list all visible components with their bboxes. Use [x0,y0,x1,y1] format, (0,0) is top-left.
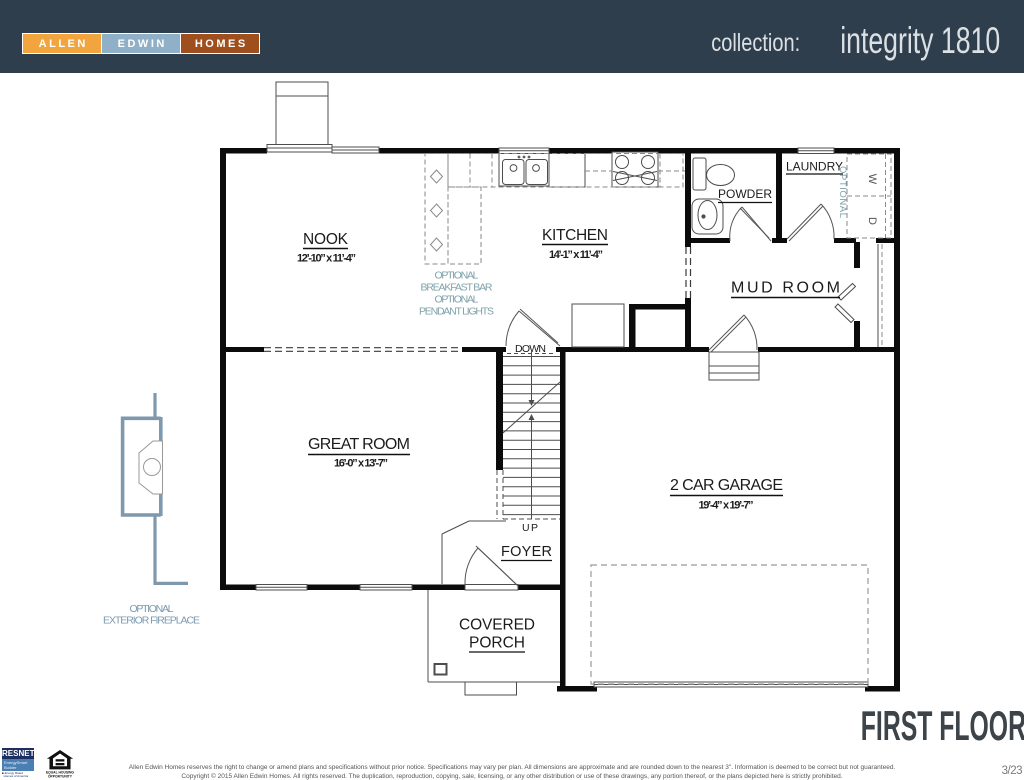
svg-text:D: D [866,217,878,225]
svg-text:W: W [866,174,878,185]
svg-text:PORCH: PORCH [469,635,525,652]
svg-text:EXTERIOR FIREPLACE: EXTERIOR FIREPLACE [103,615,200,627]
svg-text:DOWN: DOWN [515,343,546,355]
svg-text:KITCHEN: KITCHEN [542,227,608,244]
svg-text:OPPORTUNITY: OPPORTUNITY [48,775,73,779]
svg-text:LAUNDRY: LAUNDRY [786,160,843,174]
svg-text:16’-0” x 13’-7”: 16’-0” x 13’-7” [334,458,388,470]
svg-text:19’-4” x 19’-7”: 19’-4” x 19’-7” [699,500,754,512]
svg-text:NOOK: NOOK [303,231,349,248]
svg-text:2 CAR GARAGE: 2 CAR GARAGE [670,477,783,494]
svg-text:14’-1” x 11’-4”: 14’-1” x 11’-4” [549,249,603,261]
svg-text:POWDER: POWDER [718,187,772,201]
svg-text:OPTIONAL: OPTIONAL [435,270,479,282]
svg-text:12’-10” x 11’-4”: 12’-10” x 11’-4” [297,253,356,265]
svg-text:OPTIONAL: OPTIONAL [837,166,848,218]
svg-text:COVERED: COVERED [459,617,535,634]
svg-text:FOYER: FOYER [501,544,552,560]
svg-text:GREAT ROOM: GREAT ROOM [308,436,410,453]
svg-text:OPTIONAL: OPTIONAL [435,294,479,306]
svg-text:UP: UP [522,522,538,534]
svg-text:BREAKFAST BAR: BREAKFAST BAR [421,282,493,294]
svg-text:OPTIONAL: OPTIONAL [130,603,174,615]
svg-text:MUD ROOM: MUD ROOM [731,280,840,297]
svg-text:PENDANT LIGHTS: PENDANT LIGHTS [419,306,494,318]
